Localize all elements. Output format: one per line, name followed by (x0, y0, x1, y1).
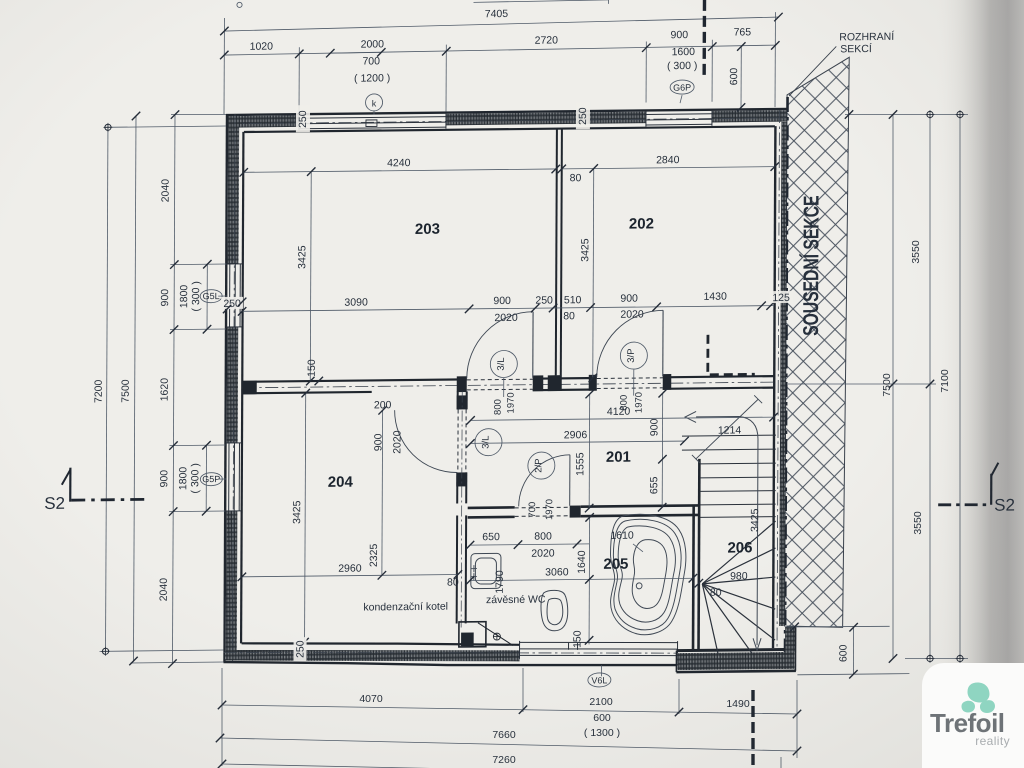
svg-text:reality: reality (975, 734, 1010, 748)
